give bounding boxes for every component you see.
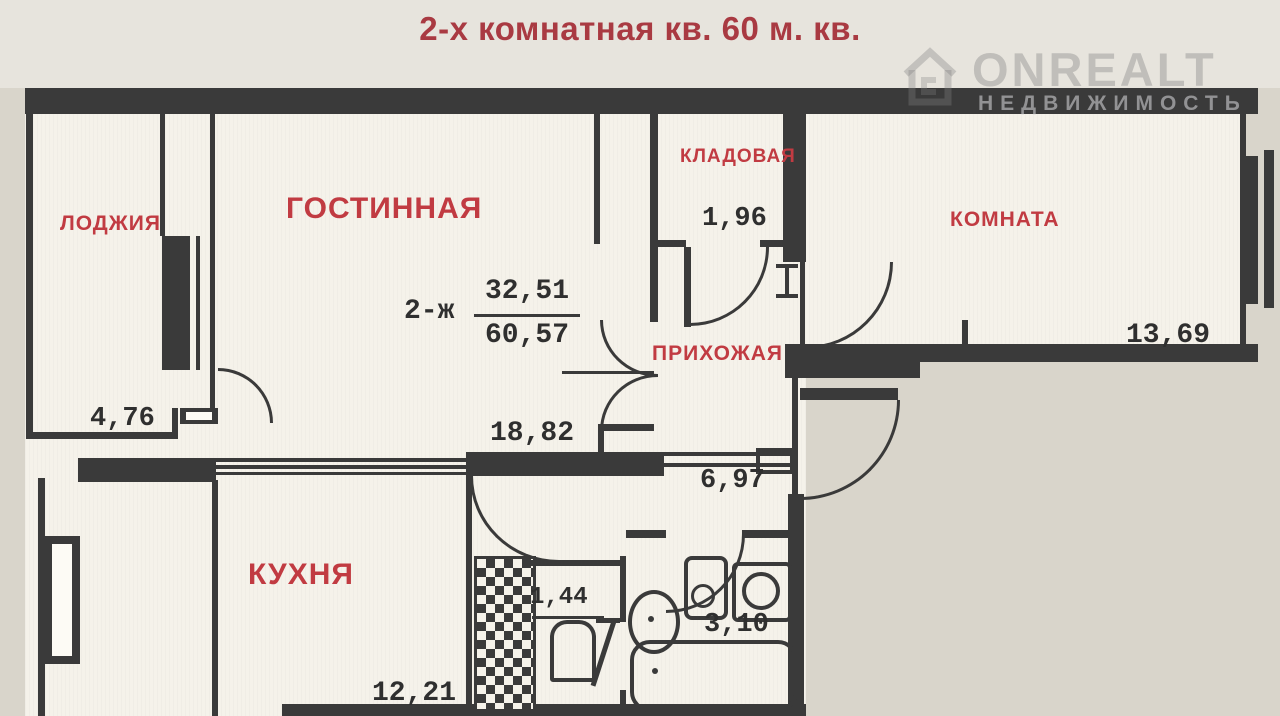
- section-marker: [776, 294, 798, 298]
- room-area-hallway: 6,97: [700, 466, 765, 496]
- window-slit: [52, 544, 72, 656]
- entrance-door-leaf: [800, 388, 898, 400]
- wall: [172, 408, 178, 438]
- room-label-loggia: ЛОДЖИЯ: [60, 212, 161, 236]
- wall: [620, 690, 626, 712]
- wall: [650, 114, 658, 246]
- wall: [466, 476, 472, 716]
- room-area-bathroom: 3,10: [704, 610, 769, 640]
- room-area-loggia: 4,76: [90, 404, 155, 434]
- onrealt-house-icon: [898, 42, 962, 110]
- room-area-wc: 1,44: [530, 584, 588, 611]
- bathtub-drain: [652, 668, 658, 674]
- room-area-bedroom: 13,69: [1126, 320, 1210, 351]
- total-area-value: 60,57: [472, 320, 582, 351]
- wall: [650, 240, 658, 322]
- vent-shaft: [474, 556, 536, 712]
- room-area-kitchen: 12,21: [372, 678, 456, 709]
- wall: [783, 114, 806, 262]
- window: [216, 472, 468, 475]
- toilet: [550, 620, 596, 682]
- room-label-bedroom: КОМНАТА: [950, 208, 1060, 232]
- section-marker: [785, 268, 789, 294]
- wall: [212, 480, 218, 716]
- wall: [742, 530, 796, 538]
- room-area-storage: 1,96: [702, 204, 767, 234]
- wall: [785, 362, 920, 378]
- door-leaf: [800, 262, 805, 346]
- room-label-storage: КЛАДОВАЯ: [680, 146, 796, 168]
- wall: [78, 458, 216, 482]
- window: [1264, 150, 1274, 308]
- wall: [26, 114, 33, 438]
- wall-stub: [962, 320, 968, 346]
- window: [216, 465, 468, 469]
- sink-drain: [648, 616, 654, 622]
- bathtub: [630, 640, 798, 712]
- room-label-hallway: ПРИХОЖАЯ: [652, 342, 783, 366]
- room-label-kitchen: КУХНЯ: [248, 558, 354, 592]
- balcony-door-leaf-slit: [186, 412, 212, 420]
- window: [216, 458, 468, 462]
- wall: [210, 114, 215, 412]
- window: [196, 236, 200, 370]
- watermark-brand: ONREALT: [972, 42, 1217, 97]
- toilet-bowl: [691, 584, 715, 608]
- page-title: 2-х комнатная кв. 60 м. кв.: [320, 10, 960, 52]
- door-arc-entrance: [800, 400, 900, 500]
- washing-machine-drum: [742, 572, 780, 610]
- wall: [594, 114, 600, 244]
- living-area-value: 32,51: [472, 276, 582, 307]
- wall: [792, 362, 798, 494]
- room-area-living: 18,82: [490, 418, 574, 449]
- wall: [466, 452, 664, 476]
- floorplan-photo: 2-х комнатная кв. 60 м. кв.: [0, 0, 1280, 716]
- room-label-living: ГОСТИННАЯ: [286, 192, 482, 226]
- paper-upper: [25, 88, 1246, 346]
- wall: [620, 556, 626, 622]
- area-underline: [532, 616, 604, 619]
- fraction-bar: [474, 314, 580, 317]
- wall: [626, 530, 666, 538]
- window: [162, 236, 190, 370]
- watermark-subtitle: НЕДВИЖИМОСТЬ: [978, 92, 1247, 116]
- window: [1246, 156, 1258, 304]
- designation-prefix: 2-ж: [404, 296, 454, 327]
